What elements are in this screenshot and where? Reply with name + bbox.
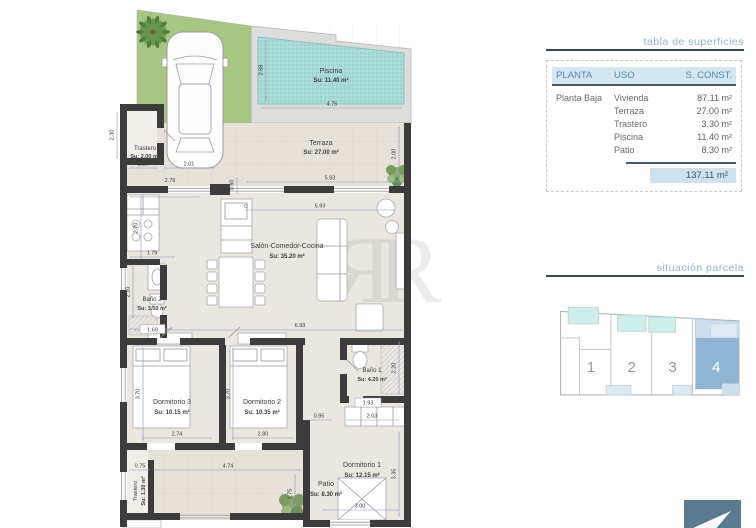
room-area-trastero2: Su: 1.30 m² (140, 476, 147, 506)
room-area-patio: Su: 8.30 m² (310, 491, 342, 498)
cell-sconst: 27.00 m² (676, 106, 732, 116)
cell-uso: Terraza (614, 106, 676, 116)
room-area-piscina: Su: 11.40 m² (313, 77, 348, 84)
room-area-salon: Su: 35.20 m² (269, 253, 304, 260)
room-label-patio: Patio (318, 481, 334, 488)
kitchen-counter (127, 195, 159, 251)
room-area-terraza: Su: 27.00 m² (303, 149, 338, 156)
cell-planta (556, 119, 614, 129)
dim-bedroom2-width: 2.80 (258, 432, 269, 438)
room-label-salon: Salón-Comedor-Cocina (250, 243, 323, 250)
dim-kitchen-height: 2.70 (134, 223, 140, 234)
room-area-dorm1: Su: 12.15 m² (344, 472, 379, 479)
dim-bath1-height: 2.20 (392, 363, 398, 374)
dim-step: 0.60 (230, 180, 236, 191)
room-label-bano2: Baño 2 (142, 297, 162, 303)
dim-bath2-height: 2.10 (126, 287, 132, 298)
room-label-dorm1: Dormitorio 1 (343, 462, 381, 469)
dim-hall: 6.93 (295, 323, 306, 329)
dim-storage1-w1: 1.10 (138, 162, 149, 168)
cell-planta (556, 132, 614, 142)
bed-bedroom1 (338, 478, 386, 520)
dim-storage1-height: 2.30 (110, 130, 116, 141)
cell-planta (556, 145, 614, 155)
title-rule (546, 275, 744, 277)
plant-pot-icon (377, 199, 395, 217)
col-header-sconst: S. CONST. (676, 70, 732, 81)
title-rule (546, 49, 744, 51)
room-label-bano1: Baño 1 (362, 368, 382, 374)
table-row: Terraza 27.00 m² (552, 104, 736, 117)
sofa (317, 219, 347, 301)
table-row: Patio 8.30 m² (552, 143, 736, 156)
dim-salon-width: 5.93 (315, 204, 326, 210)
room-label-terraza: Terraza (309, 140, 332, 147)
room-area-dorm2: Su: 10.35 m² (244, 409, 279, 416)
cell-uso: Vivienda (614, 93, 676, 103)
room-area-trastero1: Su: 2.00 m² (130, 153, 160, 160)
table-row: Trastero 3.30 m² (552, 117, 736, 130)
dim-patio-left: 0.75 (135, 464, 146, 470)
dim-terrace-width: 5.93 (325, 176, 336, 182)
dim-bedroom1-height: 3.35 (392, 469, 398, 480)
col-header-planta: PLANTA (556, 70, 614, 81)
total-divider (626, 162, 736, 164)
dim-storage1-w2: 2.01 (184, 162, 195, 168)
col-header-uso: USO (614, 70, 676, 81)
room-label-trastero1: Trastero (134, 146, 157, 152)
cell-sconst: 87.11 m² (676, 93, 732, 103)
dim-terrace-height: 2.00 (392, 149, 398, 160)
plant-pot-icon (386, 221, 399, 234)
parcel-terrace (606, 385, 631, 394)
dim-bath2-top: 1.79 (147, 251, 158, 257)
parcel2-pool (618, 315, 646, 331)
dim-bath1-width: 1.93 (363, 401, 374, 407)
cell-uso: Trastero (614, 119, 676, 129)
dim-patio-height: 1.75 (288, 489, 294, 500)
cell-planta: Planta Baja (556, 93, 614, 103)
parcel-title: situación parcela (546, 262, 744, 274)
car (162, 32, 228, 168)
cell-uso: Patio (614, 145, 676, 155)
room-label-trastero2: Trastero (133, 481, 139, 501)
table-row: Planta Baja Vivienda 87.11 m² (552, 91, 736, 104)
dim-bath2-width: 1.69 (147, 328, 158, 334)
parcel-number-2: 2 (628, 359, 636, 376)
cell-sconst: 11.40 m² (676, 132, 732, 142)
parcel3-pool (649, 317, 676, 332)
cell-sconst: 3.30 m² (676, 119, 732, 129)
parcel-number-4: 4 (712, 359, 720, 376)
parcel4-pool (711, 324, 738, 338)
room-area-dorm3: Su: 10.15 m² (154, 409, 189, 416)
parcel-location-map: 1 2 3 4 (551, 300, 741, 412)
kitchen-island (221, 199, 252, 253)
dim-passage: 0.95 (314, 414, 325, 420)
surfaces-title: tabla de superficies (546, 36, 744, 48)
surfaces-table: PLANTA USO S. CONST. Planta Baja Viviend… (546, 60, 742, 192)
paper-plane-icon (684, 500, 741, 528)
dim-bedroom3-height: 3.70 (136, 389, 142, 400)
parcel-number-3: 3 (668, 359, 676, 376)
dim-bedroom2-height: 3.70 (226, 389, 232, 400)
parcel-number-1: 1 (587, 359, 595, 376)
parcel1-pool (568, 308, 598, 324)
table-header-row: PLANTA USO S. CONST. (552, 67, 736, 86)
parcel4-terrace (722, 384, 739, 395)
dim-pool-height: 2.68 (259, 65, 265, 76)
total-surface: 137.11 m² (650, 168, 736, 183)
outside-step (123, 520, 161, 528)
tv-sideboard (396, 233, 405, 289)
room-area-bano2: Su: 3.50 m² (137, 305, 167, 312)
dim-kitchen-top: 2.79 (165, 178, 176, 184)
agency-logo (684, 500, 741, 528)
dim-closet: 2.03 (367, 414, 378, 420)
cell-planta (556, 106, 614, 116)
room-label-dorm2: Dormitorio 2 (243, 399, 281, 406)
table-row: Piscina 11.40 m² (552, 130, 736, 143)
parcel-terrace (673, 385, 692, 394)
dim-patio-width: 4.74 (223, 464, 234, 470)
cell-uso: Piscina (614, 132, 676, 142)
room-label-dorm3: Dormitorio 3 (153, 399, 191, 406)
room-label-piscina: Piscina (320, 68, 343, 75)
cell-sconst: 8.30 m² (676, 145, 732, 155)
room-area-bano1: Su: 4.20 m² (357, 376, 387, 383)
dim-bedroom1-width: 3.00 (355, 504, 366, 510)
armchair (356, 304, 383, 331)
dim-pool-width: 4.75 (327, 102, 338, 108)
dim-bedroom3-width: 2.74 (172, 432, 183, 438)
floorplan-sheet: ЯR (0, 0, 756, 528)
floorplan-drawing: ЯR (0, 0, 545, 528)
